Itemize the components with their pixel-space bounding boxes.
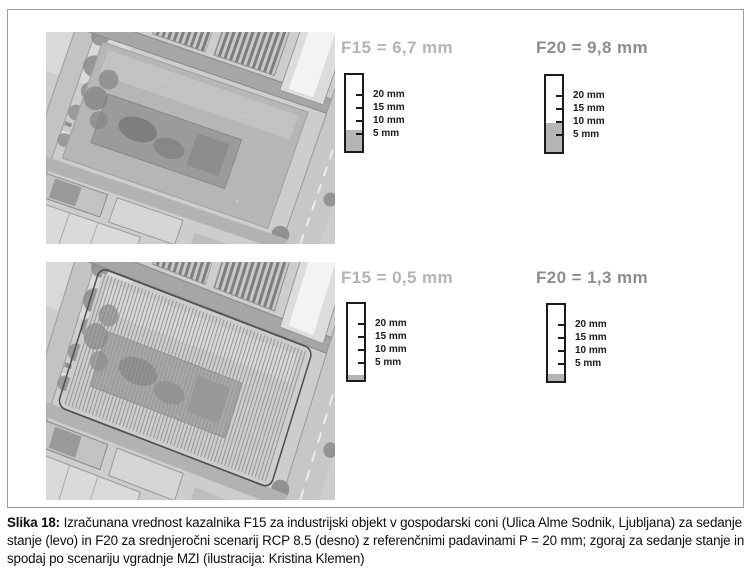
rain-gauge-top-left: F15 = 6,7 mm 20 mm15 mm10 mm5 mm (341, 38, 511, 168)
gauge-tick (358, 323, 364, 325)
gauge-tick-label: 10 mm (373, 116, 405, 126)
gauge-tick-label: 10 mm (575, 346, 607, 356)
gauge-tick (556, 134, 562, 136)
gauge-tick-label: 20 mm (375, 319, 407, 329)
gauge-tick (558, 350, 564, 352)
f15-value-label-bottom: F15 = 0,5 mm (341, 268, 453, 288)
gauge-tick-label: 5 mm (375, 358, 401, 368)
gauge-tick-label: 20 mm (573, 91, 605, 101)
gauge-tube: 20 mm15 mm10 mm5 mm (344, 73, 364, 153)
aerial-photo-current-state (46, 32, 335, 244)
gauge-tick (556, 108, 562, 110)
gauge-tick (356, 133, 362, 135)
gauge-tick (358, 336, 364, 338)
gauge-tick-label: 10 mm (573, 117, 605, 127)
gauge-tick (556, 121, 562, 123)
f20-value-label-bottom: F20 = 1,3 mm (536, 268, 648, 288)
gauge-tick-label: 15 mm (375, 332, 407, 342)
gauge-tick (356, 120, 362, 122)
gauge-tick-label: 15 mm (573, 104, 605, 114)
gauge-tick (358, 349, 364, 351)
gauge-tick-label: 5 mm (373, 129, 399, 139)
gauge-tick (356, 94, 362, 96)
gauge-tick (356, 107, 362, 109)
gauge-tick (358, 362, 364, 364)
rain-gauge-bottom-left: F15 = 0,5 mm 20 mm15 mm10 mm5 mm (341, 268, 511, 398)
gauge-fill (348, 375, 364, 380)
figure-caption-text: Izračunana vrednost kazalnika F15 za ind… (7, 515, 744, 566)
gauge-fill (546, 123, 562, 152)
gauge-tick-label: 20 mm (373, 90, 405, 100)
gauge-tick-label: 5 mm (573, 130, 599, 140)
aerial-photo-bottom-svg (46, 262, 335, 500)
gauge-tick (558, 363, 564, 365)
f20-value-label-top: F20 = 9,8 mm (536, 38, 648, 58)
figure-caption: Slika 18: Izračunana vrednost kazalnika … (7, 514, 745, 569)
rain-gauge-bottom-right: F20 = 1,3 mm 20 mm15 mm10 mm5 mm (536, 268, 706, 398)
gauge-tube: 20 mm15 mm10 mm5 mm (346, 302, 366, 382)
gauge-tick-label: 20 mm (575, 320, 607, 330)
gauge-fill (548, 374, 564, 381)
gauge-tick (558, 324, 564, 326)
gauge-tick-label: 15 mm (373, 103, 405, 113)
gauge-tube: 20 mm15 mm10 mm5 mm (546, 303, 566, 383)
gauge-tube: 20 mm15 mm10 mm5 mm (544, 74, 564, 154)
gauge-tick-label: 15 mm (575, 333, 607, 343)
gauge-tick-label: 10 mm (375, 345, 407, 355)
aerial-photo-mzi-scenario (46, 262, 335, 500)
rain-gauge-top-right: F20 = 9,8 mm 20 mm15 mm10 mm5 mm (536, 38, 706, 168)
aerial-photo-top-svg (46, 32, 335, 244)
gauge-tick (556, 95, 562, 97)
gauge-tick (558, 337, 564, 339)
figure-caption-number: Slika 18: (7, 515, 60, 530)
figure-frame: F15 = 6,7 mm 20 mm15 mm10 mm5 mm F20 = 9… (7, 9, 744, 508)
f15-value-label-top: F15 = 6,7 mm (341, 38, 453, 58)
gauge-tick-label: 5 mm (575, 359, 601, 369)
